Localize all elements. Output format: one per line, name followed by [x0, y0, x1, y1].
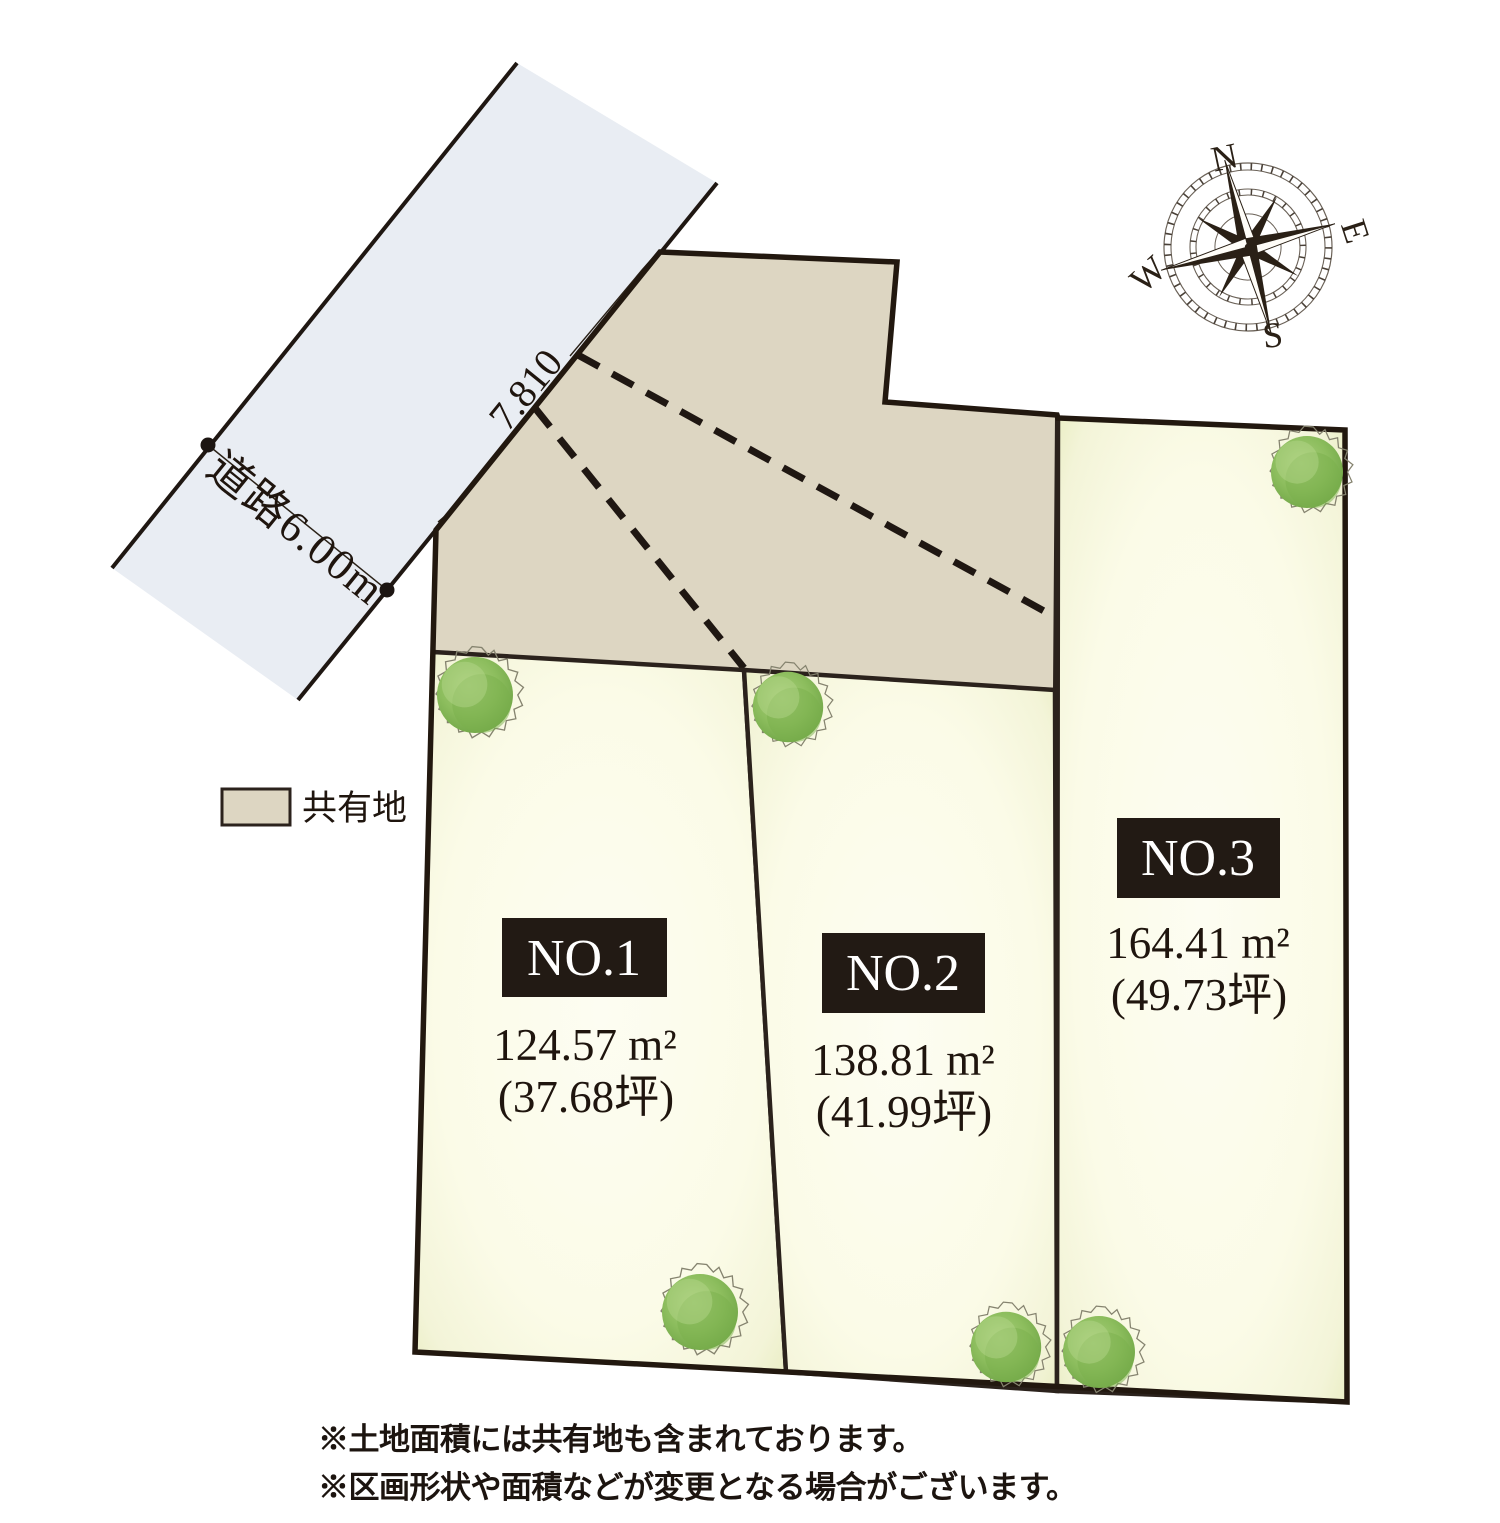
lot-no1-label: NO.1 — [527, 930, 641, 987]
lot-no2-label-group: NO.2 138.81 m² (41.99坪) — [811, 933, 995, 1137]
footnotes: ※土地面積には共有地も含まれております。 ※区画形状や面積などが変更となる場合が… — [318, 1422, 1076, 1505]
compass-north-label: N — [1208, 135, 1242, 180]
compass-east-label: E — [1333, 215, 1378, 248]
site-plan: 道路6.00m 7.810 NO.1 124.57 m² (37.68坪) NO… — [0, 0, 1500, 1523]
lot-no1-tsubo-value: (37.68坪) — [498, 1072, 674, 1122]
lot-no3-area-value: 164.41 m² — [1106, 918, 1290, 968]
compass-rose-icon: N E S W — [1122, 135, 1378, 357]
legend: 共有地 — [222, 789, 407, 828]
compass-south-label: S — [1261, 314, 1285, 356]
note-line-1: ※土地面積には共有地も含まれております。 — [318, 1422, 923, 1457]
lot-no3-area — [1057, 418, 1347, 1402]
lot-no1-area-value: 124.57 m² — [493, 1020, 677, 1070]
lot-no3-label: NO.3 — [1141, 830, 1255, 887]
site-plan-svg: 道路6.00m 7.810 NO.1 124.57 m² (37.68坪) NO… — [0, 0, 1500, 1523]
lot-no3-label-group: NO.3 164.41 m² (49.73坪) — [1106, 818, 1290, 1020]
note-line-2: ※区画形状や面積などが変更となる場合がございます。 — [318, 1470, 1076, 1505]
lot-no1-area — [415, 652, 786, 1372]
road-width-dot-left — [201, 438, 216, 453]
legend-shared-label: 共有地 — [302, 789, 407, 828]
legend-shared-swatch — [222, 789, 290, 825]
lot-no2-area-value: 138.81 m² — [811, 1035, 995, 1085]
lot-no1-label-group: NO.1 124.57 m² (37.68坪) — [493, 918, 677, 1122]
lot-no2-area — [744, 670, 1057, 1391]
lot-no2-label: NO.2 — [846, 945, 960, 1002]
lot-no2-tsubo-value: (41.99坪) — [816, 1087, 992, 1137]
lot-no3-tsubo-value: (49.73坪) — [1111, 970, 1287, 1020]
